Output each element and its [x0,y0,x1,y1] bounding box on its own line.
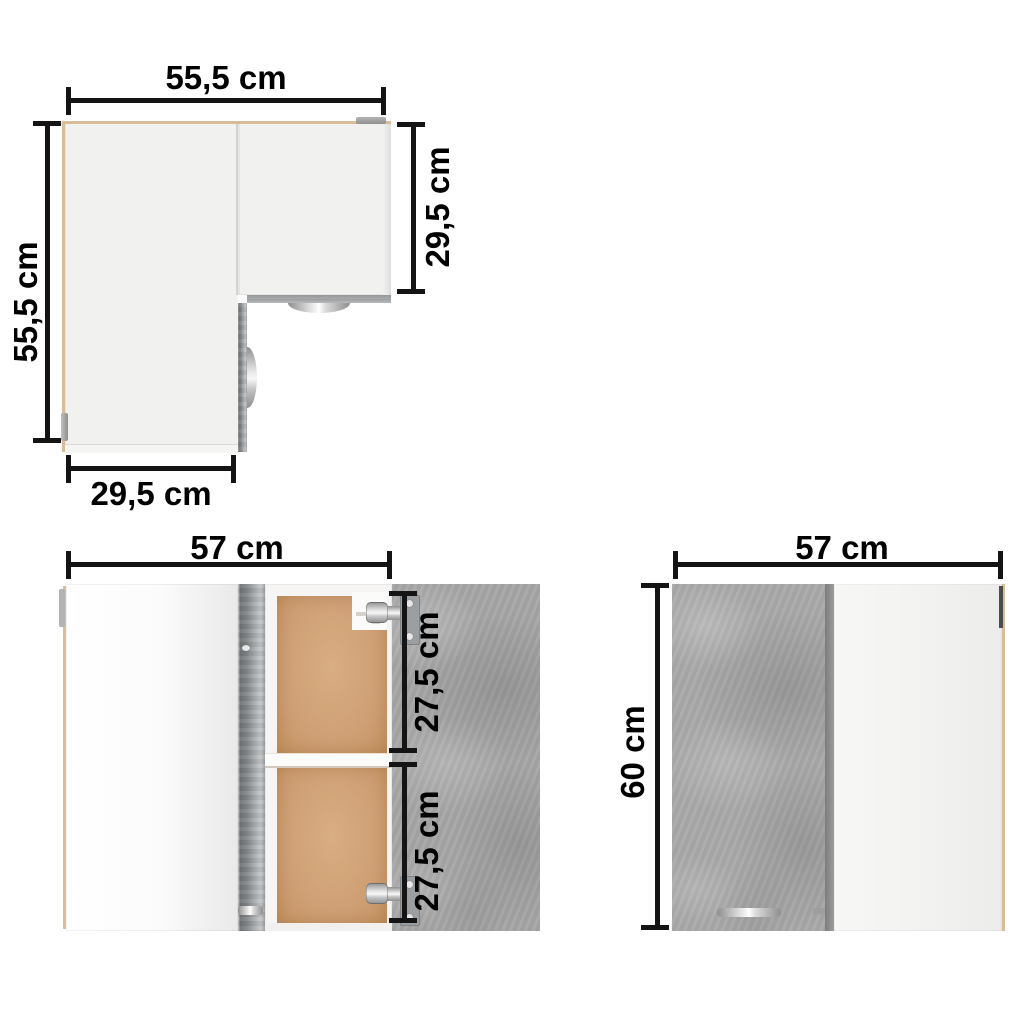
interior-shelf [265,753,392,768]
closed-view-bracket-mark [999,586,1003,628]
front-closed-height-label: 60 cm [613,642,653,862]
closed-view-divider-strip [825,584,834,931]
closed-view-white-side-panel [834,584,1002,931]
hinge-upper-cup [366,602,388,623]
dimension-line [655,585,660,930]
dimension-tick [673,551,678,579]
door-edge-hinge-foot [238,906,263,915]
closed-view-right-edge-band [1002,584,1005,931]
hinge-lower-cup [366,883,388,904]
dimension-tick [998,551,1003,579]
closed-door-concrete [672,584,825,931]
front-closed-figure: 57 cm 60 cm [0,0,1024,1024]
front-closed-width-label: 57 cm [732,528,952,568]
dimension-tick [641,925,669,930]
closed-door-handle [717,908,781,917]
corner-wall-cabinet-dimension-diagram: 55,5 cm 55,5 cm 29,5 cm 29,5 cm [0,0,1024,1024]
closed-door-hinge-mark [813,908,825,914]
lower-shelf-label: 27,5 cm [407,741,447,961]
dimension-tick [641,583,669,588]
